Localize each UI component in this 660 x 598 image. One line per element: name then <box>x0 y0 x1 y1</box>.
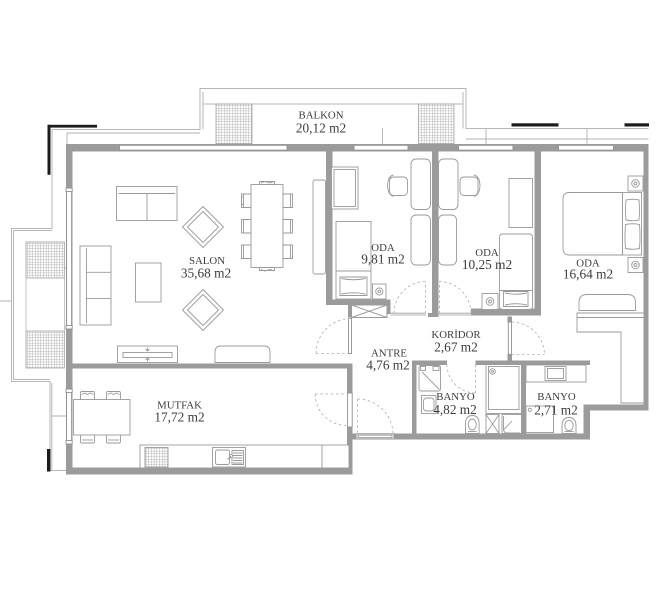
svg-text:20,12 m2: 20,12 m2 <box>296 121 346 136</box>
svg-text:9,81 m2: 9,81 m2 <box>361 252 405 267</box>
svg-text:2,71 m2: 2,71 m2 <box>534 403 578 418</box>
svg-text:4,82 m2: 4,82 m2 <box>433 402 477 417</box>
svg-text:4,76 m2: 4,76 m2 <box>366 358 410 373</box>
svg-text:17,72 m2: 17,72 m2 <box>154 410 204 425</box>
svg-text:BANYO: BANYO <box>537 391 576 403</box>
svg-text:10,25 m2: 10,25 m2 <box>462 257 512 272</box>
svg-text:35,68 m2: 35,68 m2 <box>181 266 231 281</box>
svg-text:16,64 m2: 16,64 m2 <box>563 267 613 282</box>
svg-text:2,67 m2: 2,67 m2 <box>434 340 478 355</box>
